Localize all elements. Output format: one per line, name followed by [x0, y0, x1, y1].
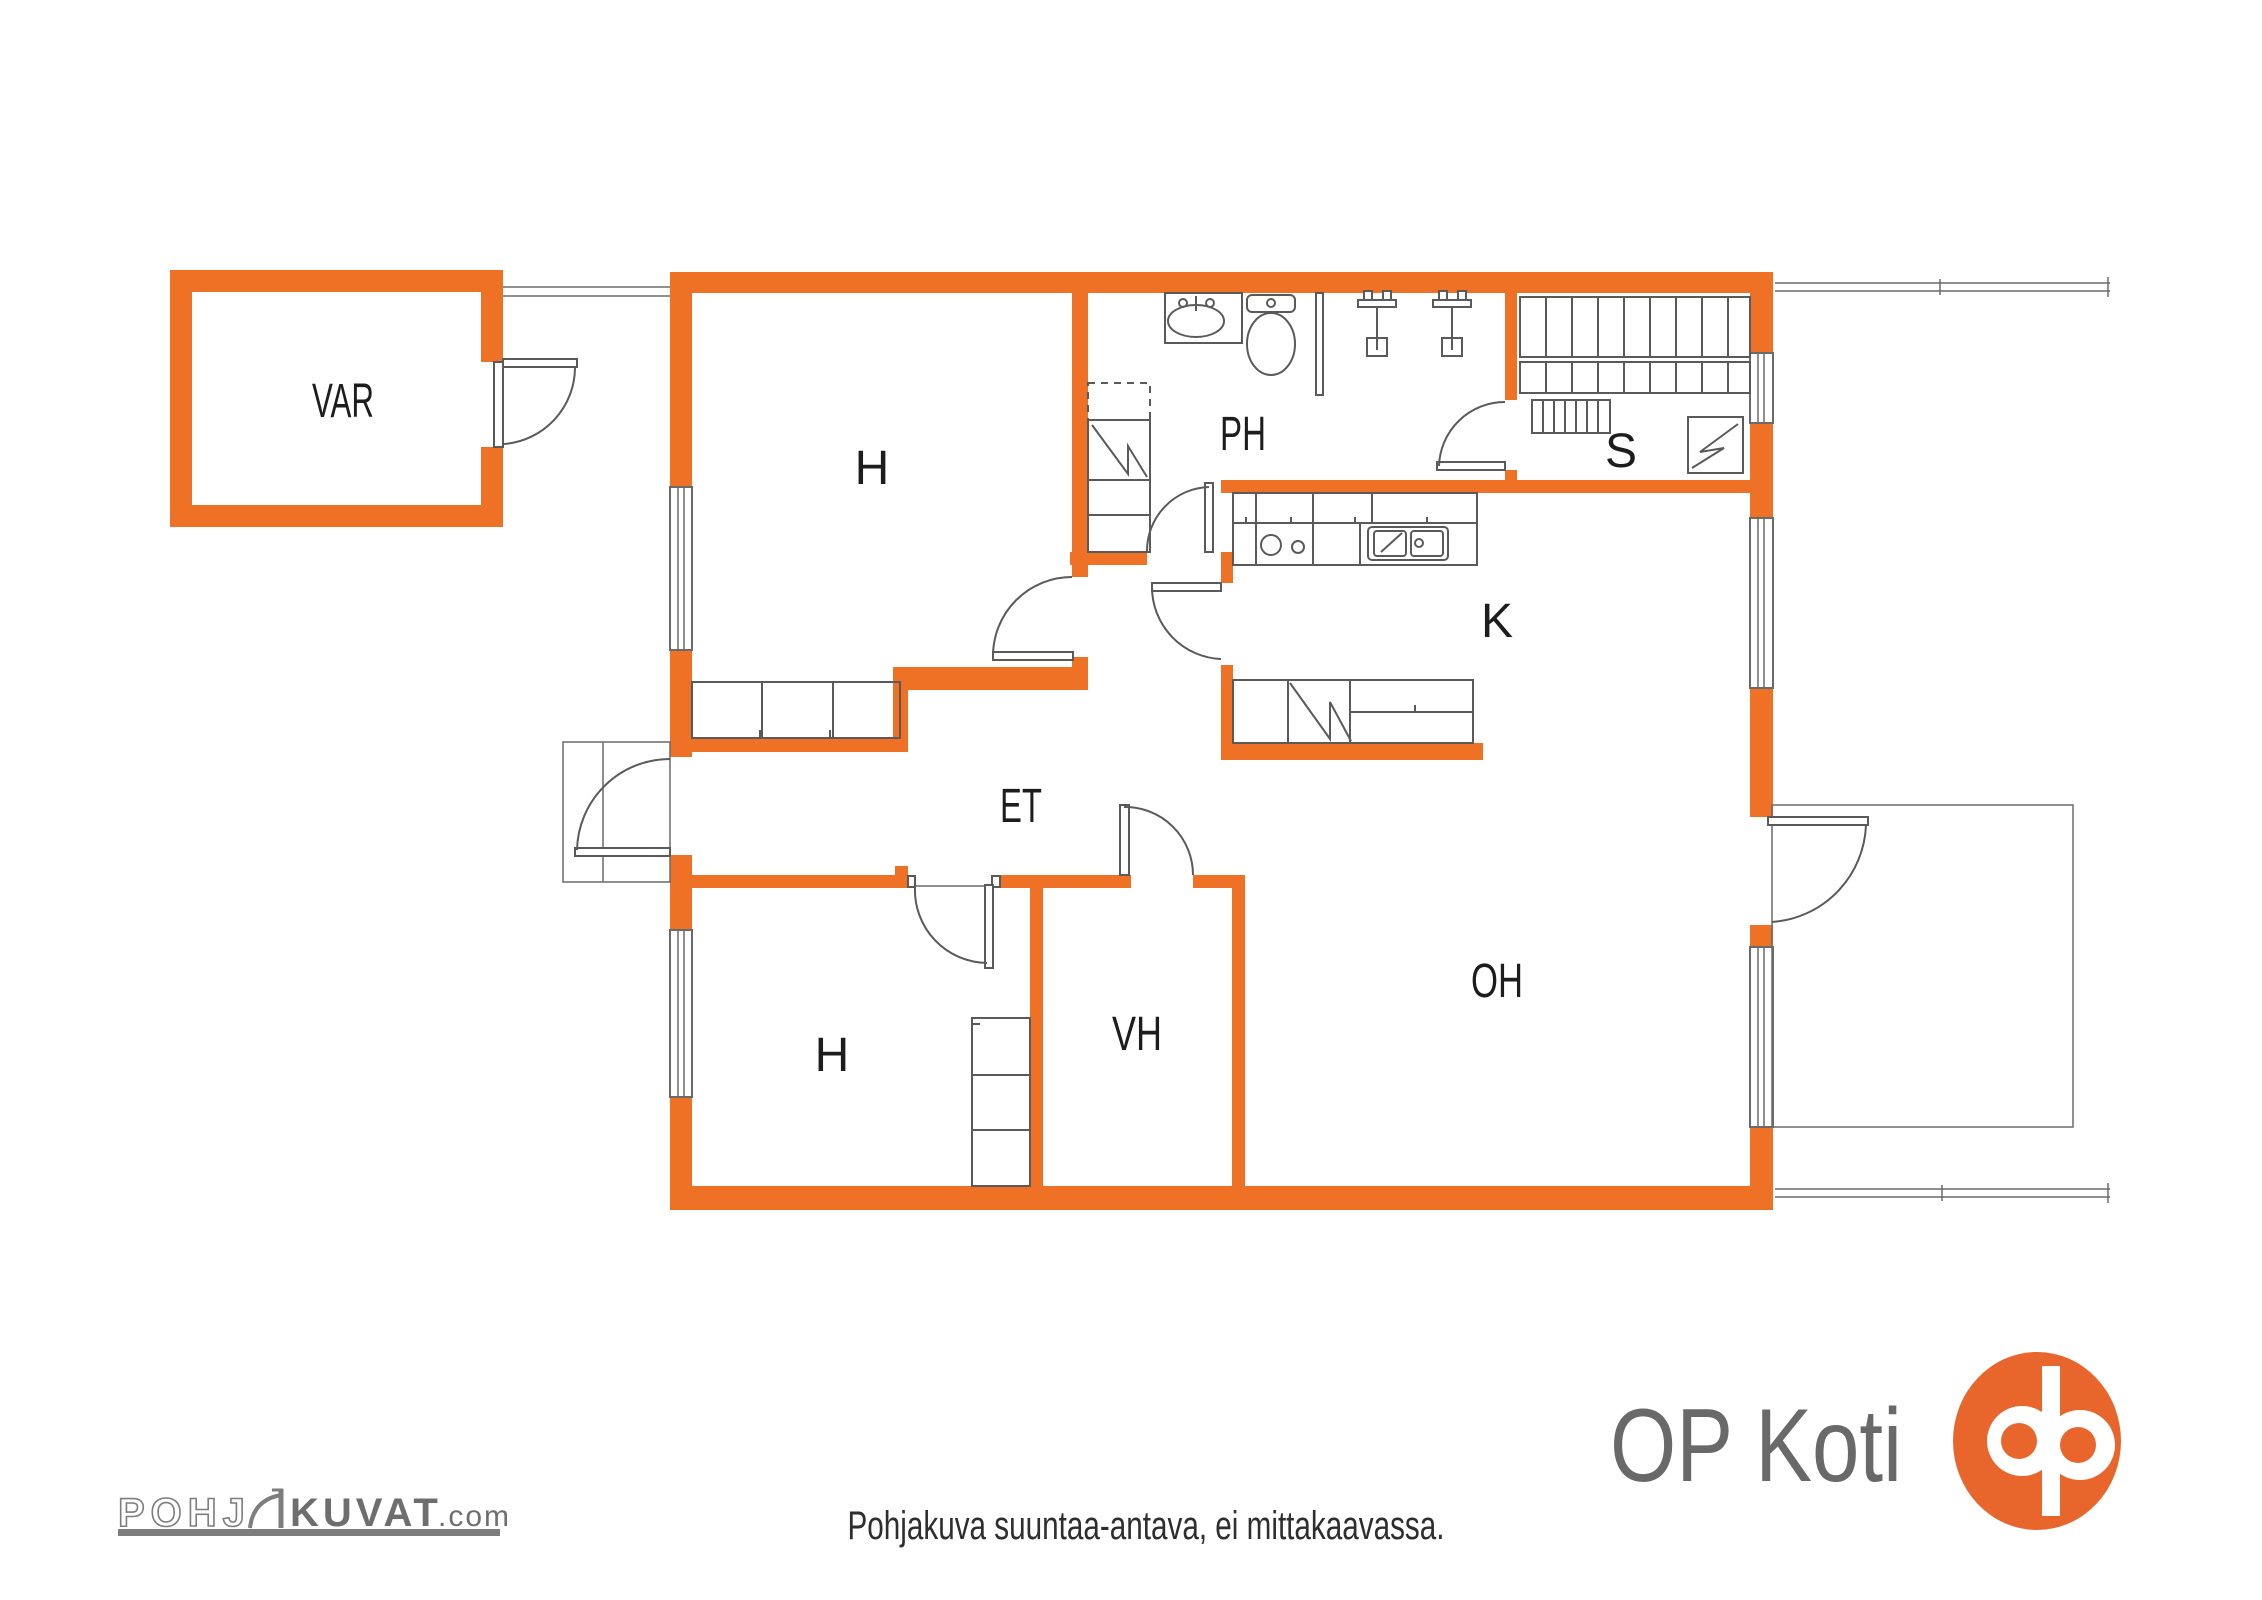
room-label-h1: H — [855, 442, 890, 495]
stove-icon — [1261, 535, 1304, 555]
toilet-icon — [1247, 295, 1295, 375]
sauna-bench-upper — [1520, 297, 1750, 357]
kitchen-island — [1233, 680, 1473, 743]
terrace-outline — [1772, 805, 2073, 1127]
ph-cupboard — [1088, 383, 1150, 552]
deck-edge-top — [1775, 277, 2110, 297]
op-koti-logo: OP Koti — [1610, 1352, 2121, 1530]
door-kitchen — [1152, 583, 1221, 659]
window-h1-left — [670, 487, 692, 650]
door-glyph-icon — [250, 1489, 283, 1528]
door-terrace — [1768, 817, 1868, 922]
floor-plan: VAR H PH S K ET H VH OH POHJ KUVAT .com … — [0, 0, 2262, 1600]
entrance-porch — [563, 742, 670, 882]
room-label-vh: VH — [1112, 1008, 1162, 1061]
sink-icon — [1165, 293, 1242, 343]
closets — [692, 682, 1030, 1186]
window-kitchen-right — [1750, 518, 1773, 688]
bathroom-fixtures — [1088, 291, 1471, 552]
window-oh-right — [1750, 947, 1773, 1127]
door-var — [494, 359, 577, 447]
door-h2 — [908, 876, 1000, 968]
door-front-entrance — [575, 759, 670, 856]
h1-closet-row — [692, 682, 900, 738]
door-ph — [1147, 483, 1213, 552]
h2-closet-column — [972, 1018, 1030, 1186]
room-label-var: VAR — [312, 375, 374, 428]
pohjakuvat-logo-com: .com — [438, 1500, 511, 1533]
shower-icon — [1358, 291, 1396, 356]
window-h2-left — [670, 930, 692, 1097]
door-vh — [1120, 805, 1193, 875]
door-sauna — [1437, 402, 1505, 470]
door-h1 — [993, 577, 1073, 660]
shower-icon — [1433, 291, 1471, 356]
kitchen-sink-icon — [1368, 527, 1448, 560]
room-label-oh: OH — [1471, 955, 1523, 1008]
sauna-bench-lower — [1520, 362, 1750, 393]
room-label-s: S — [1605, 425, 1637, 478]
deck-edge-bottom — [1775, 1183, 2110, 1203]
sauna-stove-icon — [1688, 417, 1743, 473]
room-label-h2: H — [815, 1029, 850, 1082]
pohjakuvat-logo-outline-text: POHJ — [118, 1491, 251, 1535]
room-label-ph: PH — [1220, 408, 1266, 461]
op-koti-text: OP Koti — [1610, 1388, 1902, 1504]
fence-var-to-house — [503, 287, 670, 296]
room-label-et: ET — [1000, 780, 1042, 833]
sauna-steps — [1532, 400, 1610, 433]
kitchen-fixtures — [1233, 493, 1477, 743]
op-logo-icon — [1953, 1352, 2121, 1530]
pohjakuvat-logo-underline — [118, 1529, 500, 1536]
pohjakuvat-logo-solid-text: KUVAT — [290, 1491, 442, 1535]
window-sauna-right — [1750, 353, 1773, 423]
room-label-k: K — [1481, 595, 1513, 648]
pohjakuvat-logo: POHJ KUVAT .com — [118, 1489, 511, 1536]
shower-partition — [1316, 293, 1323, 395]
disclaimer-text: Pohjakuva suuntaa-antava, ei mittakaavas… — [848, 1504, 1445, 1548]
